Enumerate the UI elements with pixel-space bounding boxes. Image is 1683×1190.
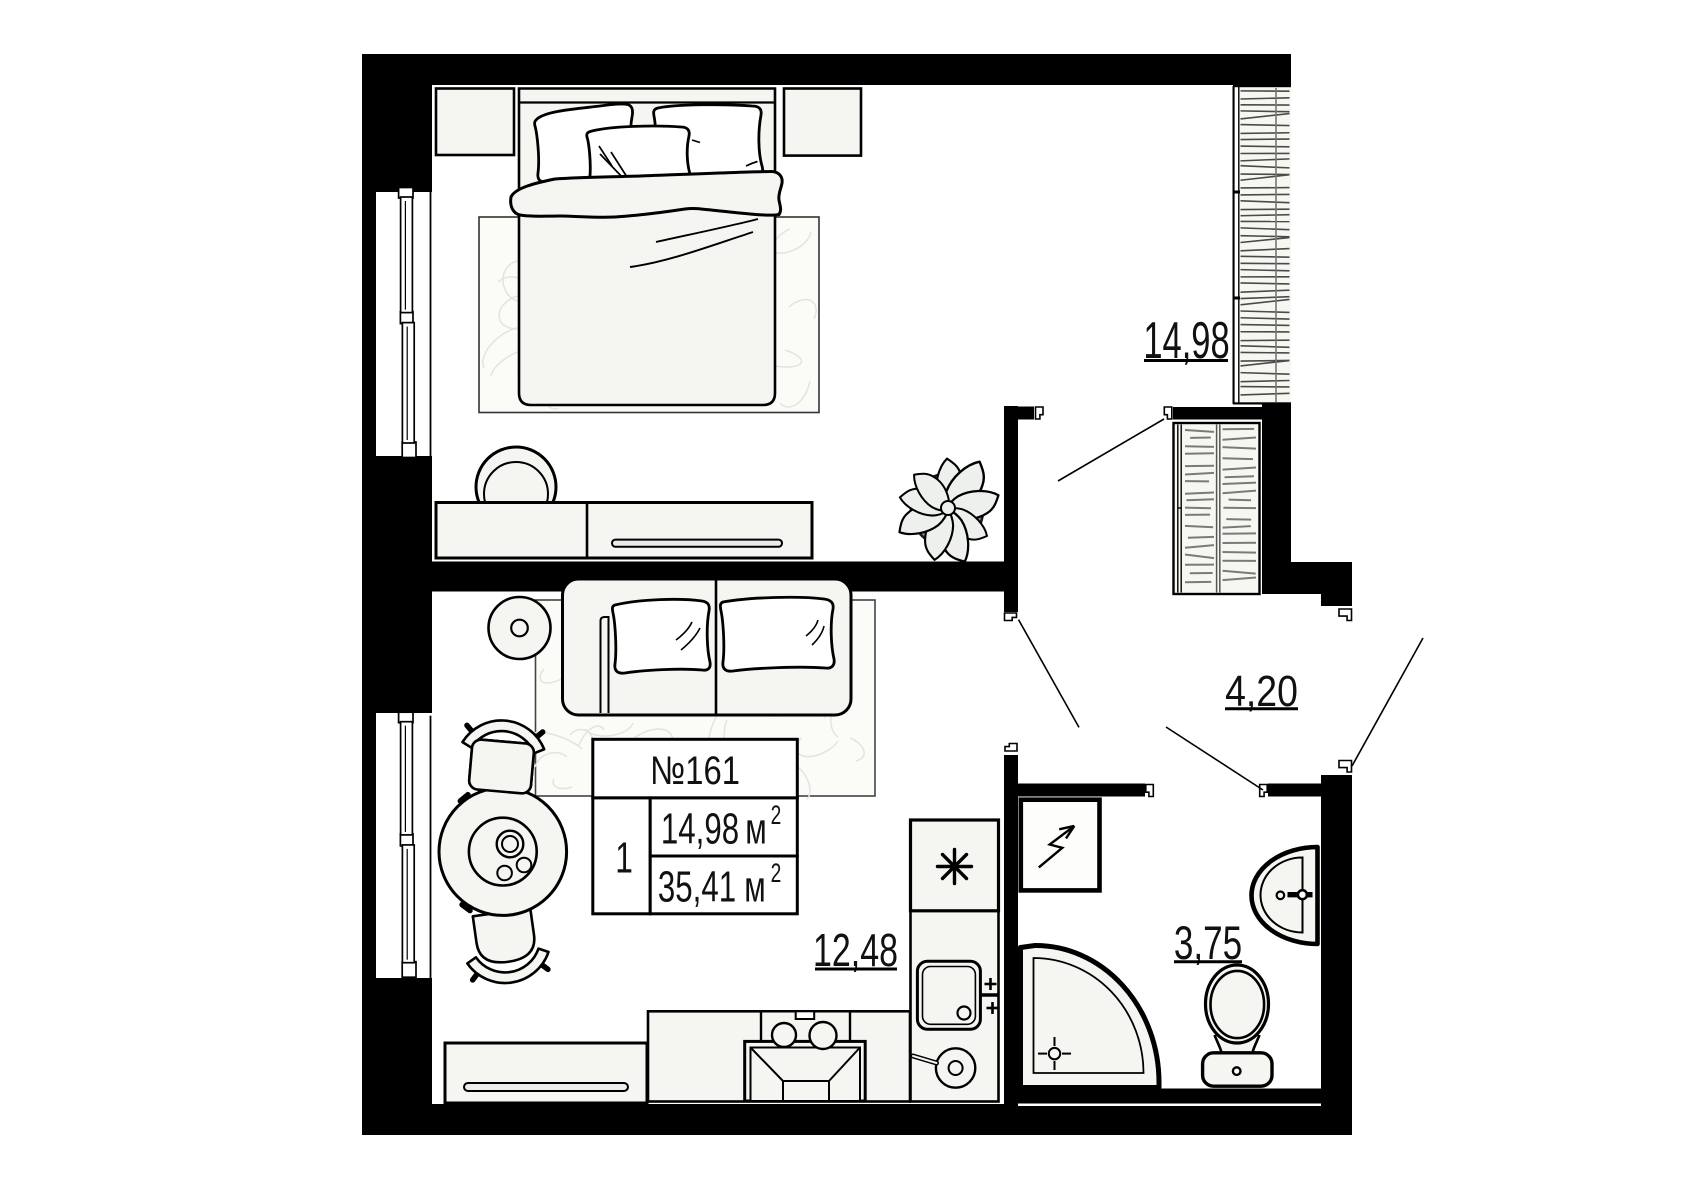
svg-text:м: м bbox=[745, 804, 766, 854]
svg-text:14,98: 14,98 bbox=[661, 804, 739, 854]
svg-text:№161: №161 bbox=[650, 748, 740, 793]
svg-text:2: 2 bbox=[771, 858, 782, 888]
svg-text:м: м bbox=[744, 862, 765, 912]
svg-text:35,41: 35,41 bbox=[658, 862, 736, 912]
svg-text:2: 2 bbox=[771, 800, 782, 830]
svg-text:1: 1 bbox=[615, 834, 633, 883]
